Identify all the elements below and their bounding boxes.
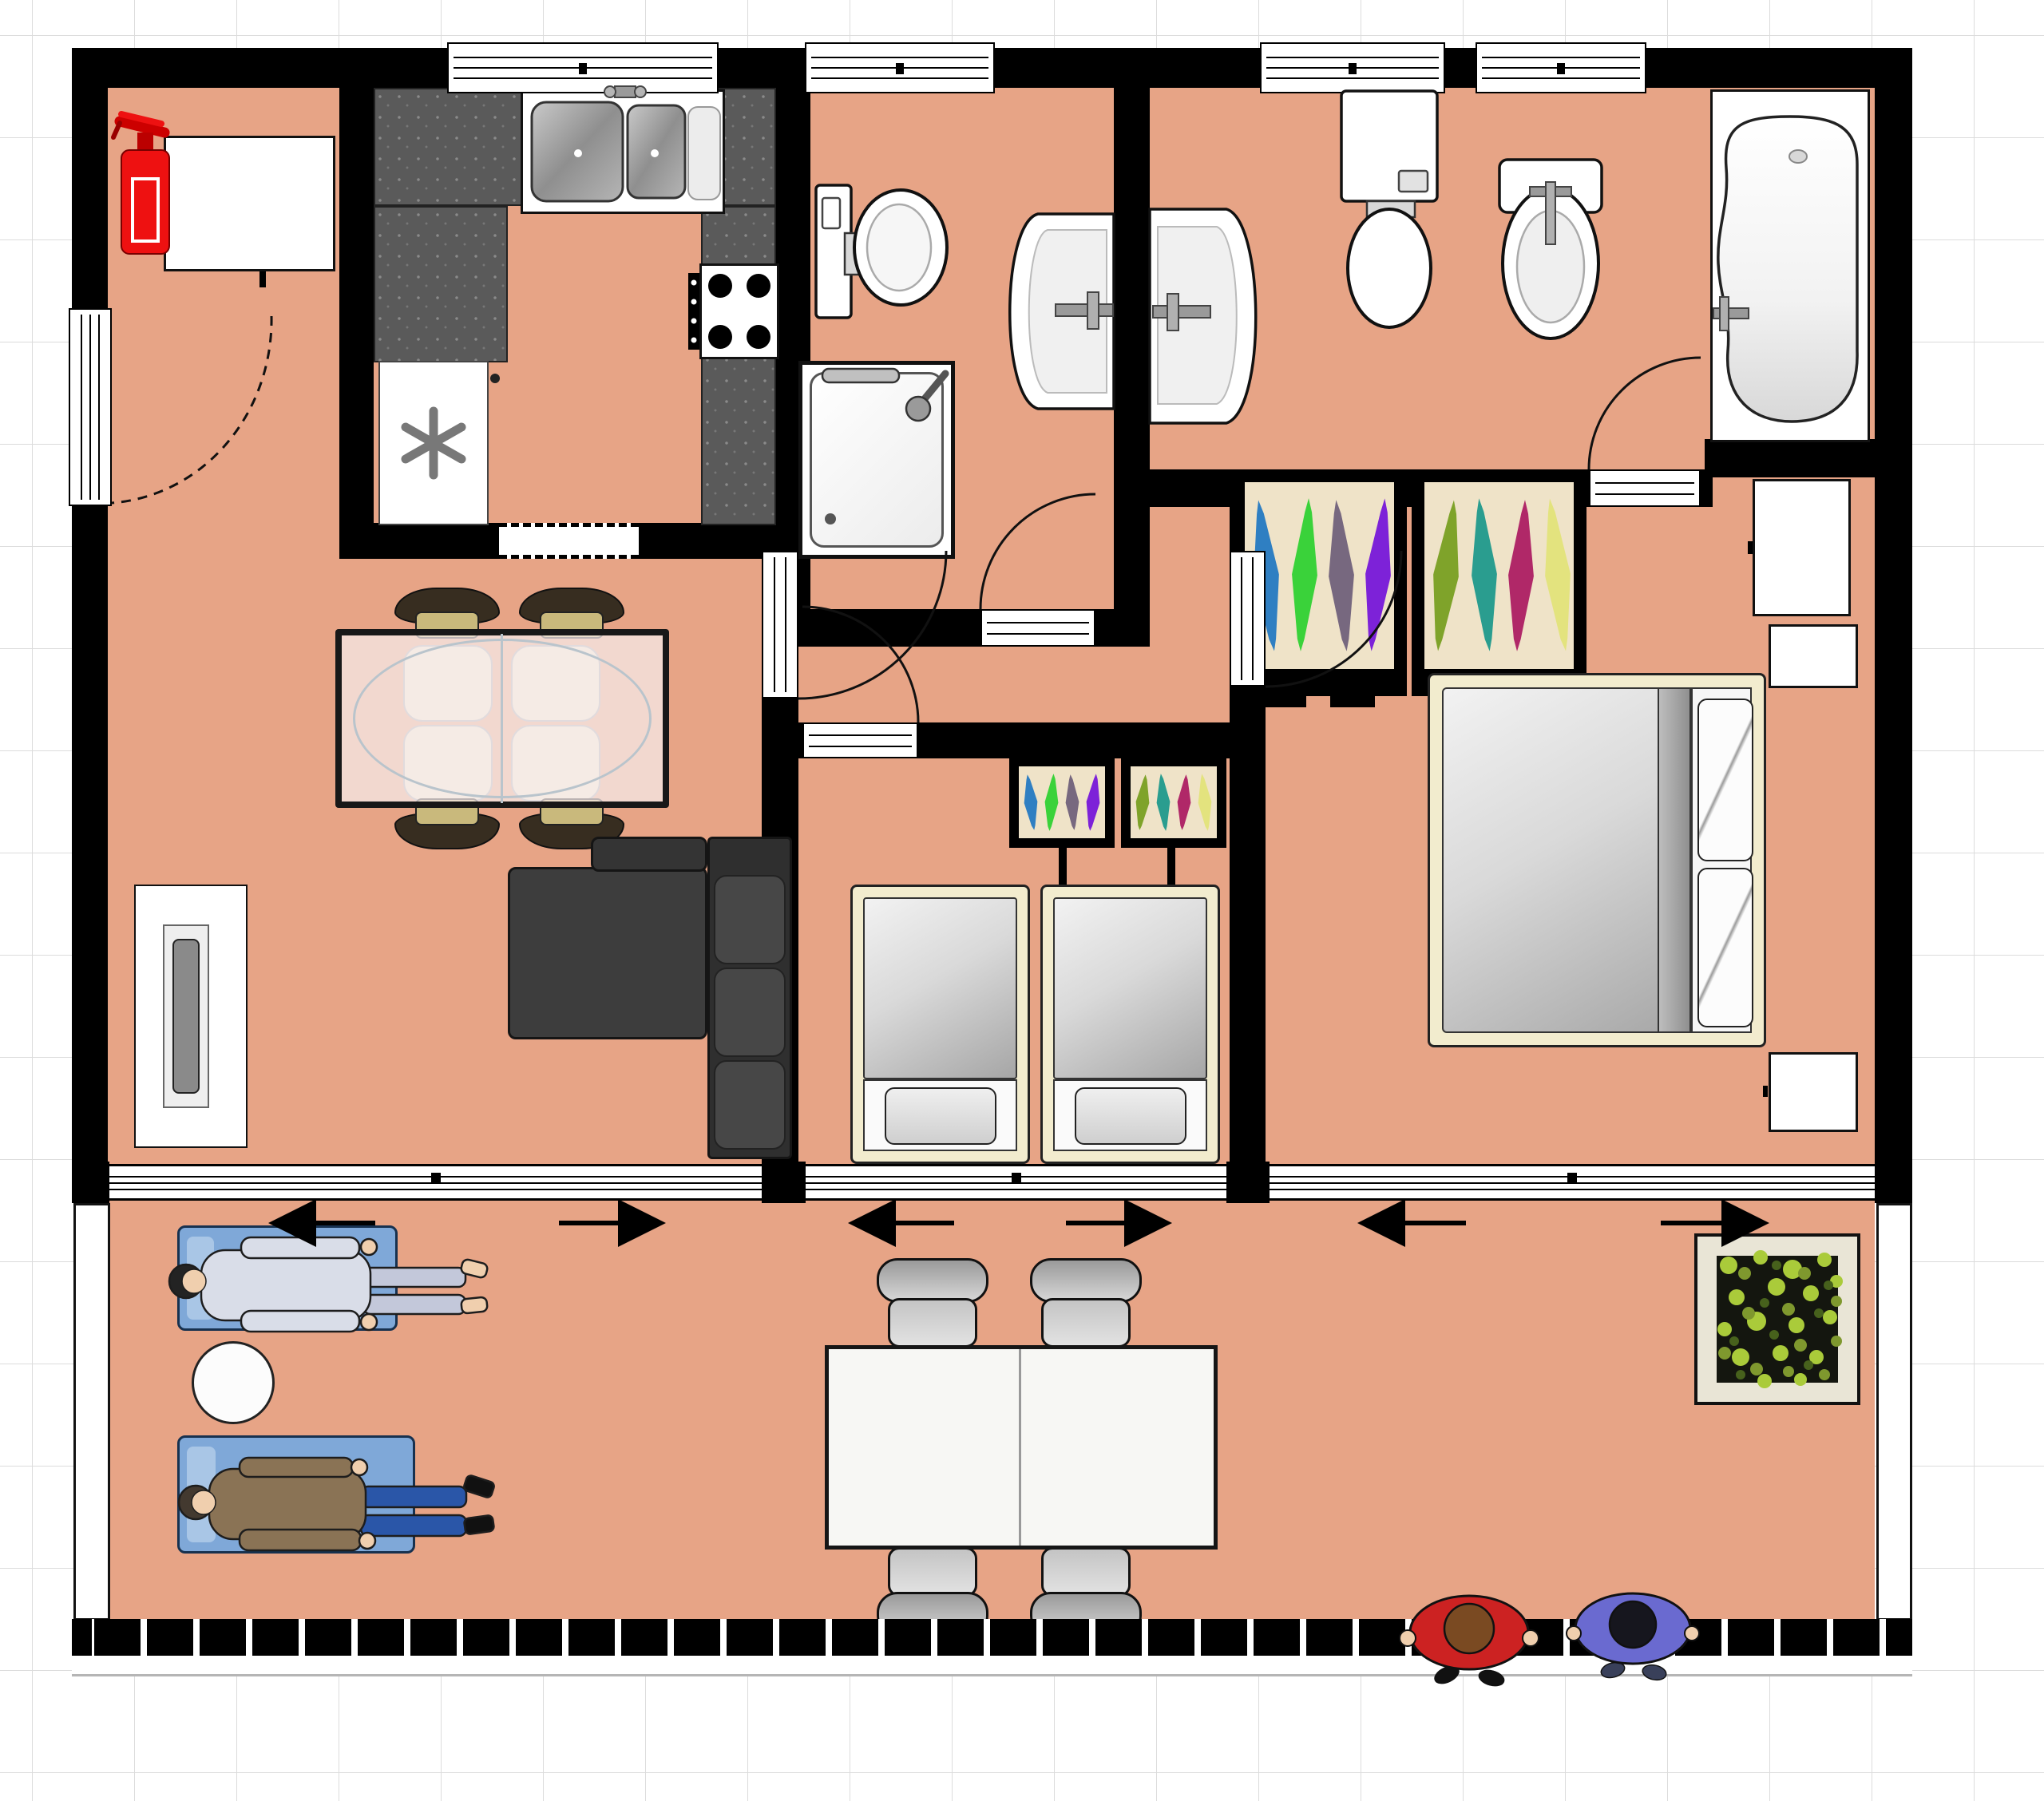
dining-table-leaf-line xyxy=(501,634,503,803)
pillow xyxy=(885,1087,996,1145)
sliding-door-children[interactable] xyxy=(806,1164,1226,1201)
wardrobe-foot xyxy=(1262,696,1306,707)
garment-icon xyxy=(1194,773,1215,832)
wardrobe-master-right-interior xyxy=(1424,482,1574,669)
double-bed-blanket xyxy=(1442,687,1691,1033)
round-side-table[interactable] xyxy=(192,1341,275,1424)
outdoor-chair-seat xyxy=(1041,1298,1131,1348)
window-bathroom-2[interactable] xyxy=(1476,42,1646,93)
nightstand[interactable] xyxy=(1769,1052,1858,1132)
nightstand-handle xyxy=(1763,1086,1768,1097)
sliding-door-living[interactable] xyxy=(109,1164,762,1201)
serving-hatch[interactable] xyxy=(499,523,639,559)
garment-icon xyxy=(1082,773,1103,832)
shower-tray xyxy=(810,372,944,548)
floor-plan-canvas xyxy=(0,0,2044,1801)
outdoor-chair-seat xyxy=(1041,1547,1131,1597)
nightstand[interactable] xyxy=(1769,624,1858,688)
sliding-door-master[interactable] xyxy=(1270,1164,1875,1201)
tv-screen xyxy=(172,939,200,1094)
pillow xyxy=(1075,1087,1186,1145)
outdoor-chair[interactable] xyxy=(1030,1258,1142,1303)
outdoor-chair[interactable] xyxy=(877,1258,988,1303)
entry-door[interactable] xyxy=(69,308,112,506)
wardrobe-small-left-interior xyxy=(1019,766,1105,838)
garment-icon xyxy=(1321,499,1361,652)
balcony-railing-outer-band xyxy=(72,1656,1912,1676)
garment-icon xyxy=(1464,497,1504,652)
double-bed-duvet-fold xyxy=(1658,687,1691,1033)
wall-stub-balcony-2 xyxy=(762,1162,806,1203)
wall-right xyxy=(1875,48,1912,1203)
outdoor-chair-seat xyxy=(888,1547,977,1597)
garment-icon xyxy=(1175,774,1194,830)
stove[interactable] xyxy=(699,263,779,359)
garment-icon xyxy=(1063,774,1083,830)
balcony-railing-bottom xyxy=(72,1619,1912,1656)
kitchen-counter-left[interactable] xyxy=(374,206,508,362)
wall-kitchen-left xyxy=(339,88,374,559)
sun-lounger-headrest xyxy=(187,1447,216,1542)
garment-icon xyxy=(1153,773,1174,831)
window-kitchen[interactable] xyxy=(447,42,719,93)
bathtub[interactable] xyxy=(1710,89,1870,442)
sofa-armrest-top xyxy=(591,837,707,872)
entry-closet[interactable] xyxy=(164,136,335,271)
window-shower-room[interactable] xyxy=(805,42,995,93)
sofa-cushion xyxy=(714,875,786,964)
garment-icon xyxy=(1020,774,1042,831)
sliding-door-junction xyxy=(1567,1173,1577,1184)
garment-icon xyxy=(1131,774,1153,831)
entry-closet-handle xyxy=(259,271,266,287)
garment-icon xyxy=(1285,497,1324,652)
corner-sofa[interactable] xyxy=(508,867,707,1039)
sofa-cushion xyxy=(714,1060,786,1150)
wardrobe-foot xyxy=(1330,696,1375,707)
wall-bathrooms-divider xyxy=(1114,88,1150,647)
wall-stub-balcony-1 xyxy=(72,1162,109,1203)
single-bed-blanket xyxy=(863,897,1017,1079)
stove-control-strip xyxy=(688,273,699,350)
sliding-door-junction xyxy=(431,1173,441,1184)
balcony-railing-right xyxy=(1876,1203,1912,1621)
balcony-railing-left xyxy=(73,1203,110,1621)
door-shower-room[interactable] xyxy=(980,609,1095,647)
door-living-hall[interactable] xyxy=(762,551,798,699)
door-bathroom[interactable] xyxy=(1589,469,1701,507)
sliding-door-junction xyxy=(1012,1173,1021,1184)
dresser-handle xyxy=(1748,541,1753,554)
sofa-cushion xyxy=(714,968,786,1057)
garment-icon xyxy=(1423,499,1469,653)
wardrobe-small-right-interior xyxy=(1131,766,1217,838)
wardrobe-bed-connector xyxy=(1167,848,1175,886)
door-master-bedroom[interactable] xyxy=(1230,551,1266,687)
wall-stub-balcony-4 xyxy=(1875,1162,1912,1203)
pillow xyxy=(1697,868,1753,1027)
wardrobe-master-left-interior xyxy=(1245,482,1394,669)
garment-icon xyxy=(1042,773,1062,831)
dresser[interactable] xyxy=(1753,479,1851,616)
garment-icon xyxy=(1502,499,1540,652)
single-bed-blanket xyxy=(1053,897,1207,1079)
wardrobe-bed-connector xyxy=(1059,848,1067,886)
kitchen-counter-right[interactable] xyxy=(701,206,776,525)
outdoor-chair-seat xyxy=(888,1298,977,1348)
sun-lounger-headrest xyxy=(187,1237,214,1320)
window-bathroom-1[interactable] xyxy=(1260,42,1445,93)
wall-under-bathtub xyxy=(1705,439,1876,477)
pillow xyxy=(1697,699,1753,861)
kitchen-sink[interactable] xyxy=(521,89,725,214)
garment-icon xyxy=(1357,497,1400,653)
outdoor-table-split-line xyxy=(1019,1349,1021,1546)
outdoor-table[interactable] xyxy=(825,1345,1218,1550)
door-children-bedroom[interactable] xyxy=(802,722,918,758)
freezer[interactable] xyxy=(378,361,489,525)
wall-left xyxy=(72,48,108,1203)
wall-stub-balcony-3 xyxy=(1226,1162,1270,1203)
planter-soil xyxy=(1717,1256,1838,1383)
